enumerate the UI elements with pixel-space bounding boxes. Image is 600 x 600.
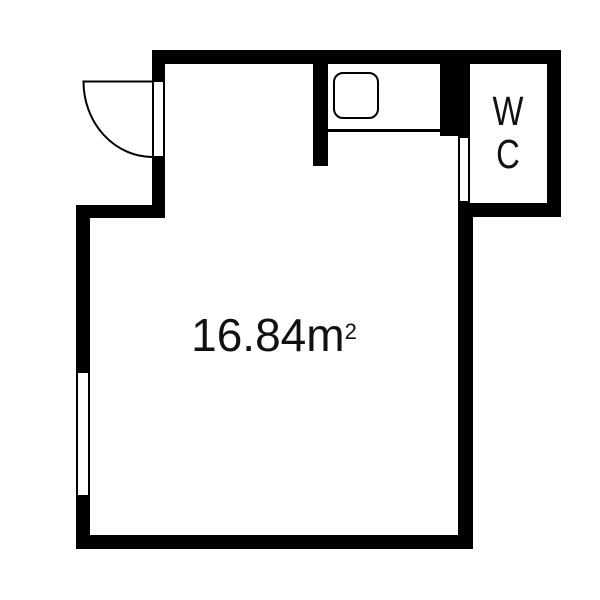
wall-top [152,50,561,64]
area-unit-exponent: 2 [345,319,357,344]
wall-kitchen-wc-divider [440,64,470,136]
wc-room-label: W C [476,90,540,176]
wc-label-line1: W [476,90,540,133]
kitchen-counter-edge [328,129,440,132]
wall-wc-bottom [458,203,561,217]
area-unit: m [306,309,344,361]
room-area-label: 16.84m2 [90,312,458,358]
wall-kitchen-partition [313,64,328,166]
wall-right [458,203,473,549]
wall-wc-right [547,50,561,217]
window [76,371,90,497]
wc-label-line2: C [476,133,540,176]
kitchen-sink [333,72,379,119]
wall-entrance-upper [152,50,165,80]
wc-door-leaf [458,136,470,203]
floor-plan: 16.84m2 W C [0,0,600,600]
wall-left-upper [76,205,90,371]
entrance-door-leaf [152,80,165,158]
area-value: 16.84 [191,309,306,361]
wall-bottom [76,535,473,549]
